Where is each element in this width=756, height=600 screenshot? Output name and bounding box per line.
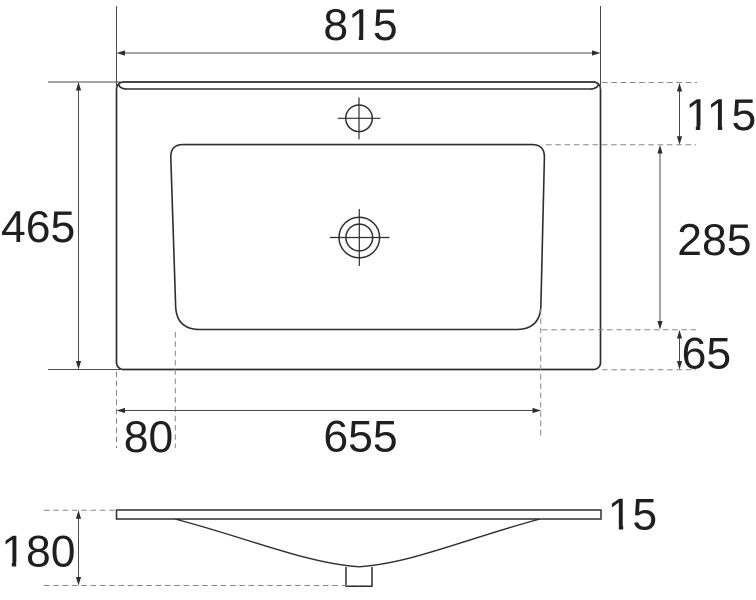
svg-text:65: 65: [682, 329, 732, 378]
svg-text:115: 115: [685, 91, 756, 140]
svg-text:815: 815: [323, 1, 397, 50]
svg-text:465: 465: [1, 203, 75, 252]
svg-text:285: 285: [677, 216, 751, 265]
svg-text:80: 80: [124, 413, 174, 462]
svg-text:655: 655: [323, 413, 397, 462]
svg-text:180: 180: [1, 527, 75, 576]
svg-text:15: 15: [608, 490, 658, 539]
